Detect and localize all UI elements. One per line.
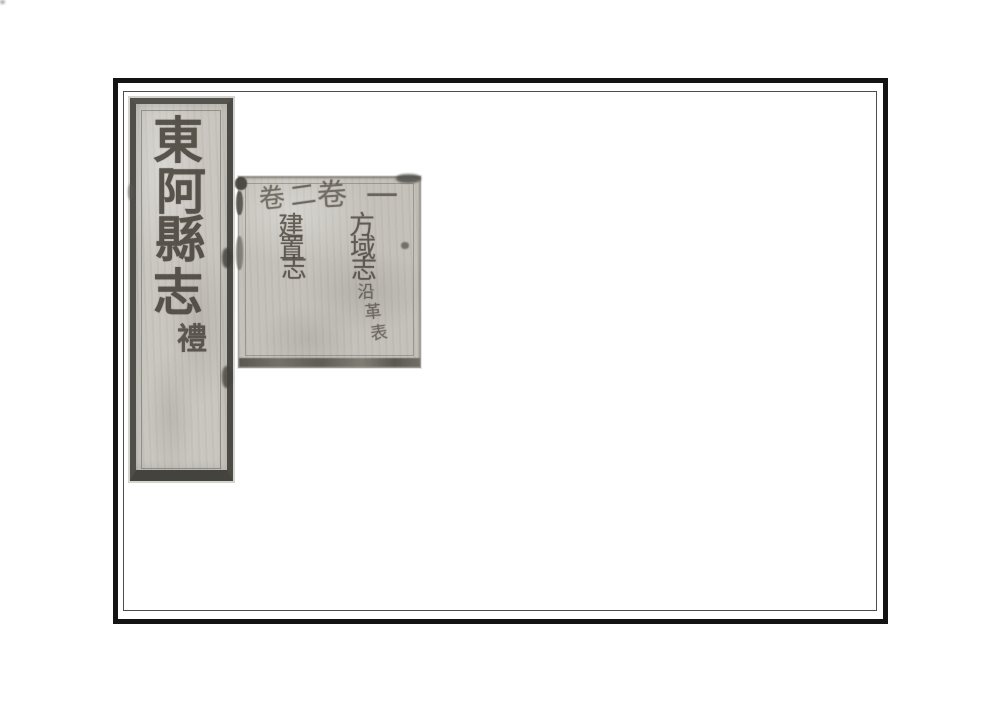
title-char-zhi: 志 — [153, 268, 203, 318]
strip-right-edge-smudge-2 — [222, 366, 232, 388]
toc-corner-smudge — [235, 177, 247, 190]
strip-left-edge-smudge — [128, 184, 134, 200]
toc-vol1-annotation-char-2: 革 — [364, 303, 382, 321]
scan-corner-speck — [0, 0, 5, 4]
toc-vol1-title-char-3: 志 — [351, 257, 377, 283]
toc-left-edge-bar-2 — [236, 236, 243, 270]
title-char-dong: 東 — [153, 116, 203, 166]
toc-vol2-title-char-3: 志 — [281, 256, 307, 282]
toc-top-right-smudge — [396, 174, 421, 183]
toc-vol1-annotation-char-1: 沿 — [358, 284, 375, 301]
title-char-a: 阿 — [156, 167, 206, 217]
toc-vol2-label: 卷 — [258, 185, 287, 214]
strip-right-edge-smudge-1 — [222, 248, 232, 268]
title-char-xian: 縣 — [155, 215, 205, 265]
toc-bottom-ink-band — [239, 358, 420, 367]
toc-vol1-number: 一 — [366, 180, 398, 212]
toc-vol1-annotation-char-3: 表 — [369, 323, 388, 342]
toc-ink-dot — [401, 242, 409, 249]
toc-left-edge-bar-1 — [236, 191, 243, 215]
volume-marker-li: 禮 — [177, 325, 207, 355]
toc-vol1-label: 卷 — [316, 180, 348, 212]
inner-frame-border — [123, 91, 877, 611]
scanned-page: 東 阿 縣 志 禮 卷 一 方 域 志 沿 革 表 卷 二 建 置 志 — [0, 0, 1000, 706]
toc-vol2-number: 二 — [288, 181, 317, 210]
